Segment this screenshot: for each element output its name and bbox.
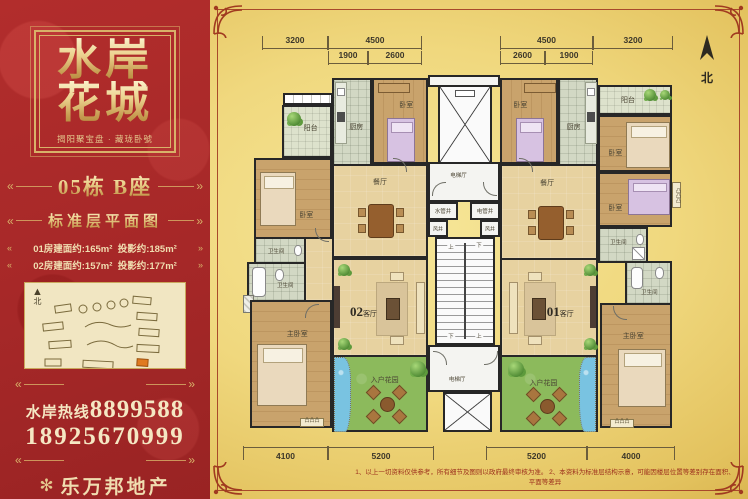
chair [358,208,366,217]
fleur-left-icon: « [15,378,102,390]
fleur-left-icon: « [15,454,102,466]
corner-flourish-icon [711,4,745,38]
room-bedroom-left-top: 卧室 [372,78,428,164]
laundry-strip [283,93,333,105]
floor-plan: 阳台 厨房 卧室 卧室 餐厅 卫生间 [243,70,673,435]
fleur-left-icon: « [7,180,52,192]
ac-position-tag: 凸凸凸 [672,182,681,208]
dim-top: 4500 [500,36,593,50]
stair-rail [464,243,466,339]
dining-table [368,204,394,238]
brand-title-frame: 水岸 花城 揭阳聚宝盘 · 藏珑卧號 [34,30,176,153]
brand-title-line1: 水岸 [57,38,153,81]
dim-bottom: 5200 [486,446,587,460]
garden-chair [526,411,542,427]
fleur-left-icon: « [7,215,42,227]
door-arc [432,182,446,196]
bathtub-icon [252,267,266,297]
dim-top-sub: 1900 [545,51,593,65]
brand-subtitle: 揭阳聚宝盘 · 藏珑卧號 [57,133,153,145]
sink-icon [587,88,595,96]
plan-north: 北 [692,34,722,86]
dim-top: 4500 [328,36,422,50]
dim-top-sub: 2600 [500,51,545,65]
corner-flourish-icon [212,462,246,496]
armchair [390,336,404,345]
bathtub-icon [631,267,643,289]
north-label: 北 [692,69,722,86]
toilet-icon [636,234,644,245]
area-unit02: 02房建面约:157m² 投影约:177m² [33,258,177,272]
chair [566,210,574,219]
disclaimer-footnote: 1、以上一切资料仅供参考，所有细节及图则以政府最终审核为准。 2、本资料为标准层… [352,466,738,486]
water-shaft: 水管井 [428,202,458,220]
room-kitchen-left: 厨房 [332,78,372,172]
bed [257,344,307,406]
corner-flourish-icon [212,4,246,38]
building-label: 05栋 B座 [58,171,152,201]
air-shaft-right: 风井 [480,220,500,237]
elevator-indicator [455,90,475,97]
room-bath-left-1: 卫生间 [254,237,306,264]
tv-console [334,286,340,328]
plant-icon [584,264,596,276]
garden-left: 入户花园 [332,355,428,432]
sink-icon [337,88,345,96]
shower-icon [632,247,645,260]
room-kitchen-right: 厨房 [558,78,598,172]
fleur-right-icon: » [108,378,195,390]
elevator-hall-top: 电梯厅 [428,162,500,202]
room-living-right: 01客厅 [500,258,598,357]
desk [378,83,410,93]
elevator-shaft-top [438,85,492,164]
site-map: ▲ 北 [24,282,186,369]
dim-bottom: 5200 [328,446,434,460]
chair [566,226,574,235]
chair [396,224,404,233]
garden-chair [366,409,382,425]
armchair [528,336,542,345]
garden-chair [392,385,408,401]
chair [528,226,536,235]
bed [260,172,296,226]
room-living-left: 02客厅 [332,258,428,357]
garden-table [540,399,555,414]
brand-panel: 水岸 花城 揭阳聚宝盘 · 藏珑卧號 « 05栋 B座 » « 标准层平面图 »… [0,0,210,499]
door-arc [484,351,498,365]
room-bath-right-1: 卫生间 [598,227,648,263]
ac-position-tag: 凸凸凸 [610,419,634,428]
bed [626,122,670,168]
tv-console [590,286,596,328]
dim-top: 3200 [593,36,673,50]
chair [396,208,404,217]
fleur-left-icon: « [7,261,30,270]
water-feature [579,357,596,432]
area-unit01: 01房建面约:165m² 投影约:185m² [33,241,177,255]
plant-icon [338,264,350,276]
dim-top-sub: 2600 [368,51,422,65]
site-map-sketch [25,283,185,369]
north-arrow-icon [694,34,720,64]
stove-icon [587,112,595,122]
air-shaft-left: 风井 [428,220,448,237]
coffee-table [532,298,546,320]
garden-chair [392,409,408,425]
sofa [416,282,425,334]
toilet-icon [294,245,302,256]
door-arc [483,182,497,196]
agency-name: 乐万邦地产 [61,472,171,499]
dim-top: 3200 [262,36,328,50]
room-master-left: 主卧室 凸凸凸 [250,300,332,428]
garden-table [380,397,395,412]
room-bath-right-2: 卫生间 [625,261,672,305]
site-map-north: ▲ 北 [32,287,43,306]
dim-bottom: 4000 [587,446,675,460]
fleur-right-icon: » [180,244,203,253]
sofa [509,282,518,334]
garden-chair [552,387,568,403]
brand-title-line2: 花城 [57,81,153,124]
room-master-right: 主卧室 凸凸凸 [600,303,672,428]
fleur-right-icon: » [158,180,203,192]
dim-bottom: 4100 [243,446,328,460]
armchair [390,272,404,281]
plan-title-label: 标准层平面图 [48,210,162,231]
plant-icon [287,112,301,126]
plant-icon [584,338,596,350]
hall-left [304,237,334,302]
garden-chair [366,385,382,401]
room-balcony-left: 阳台 [282,105,332,158]
hotline: 水岸热线8899588 [26,396,185,424]
chair [528,210,536,219]
room-bedroom-right-2: 卧室 凸凸凸 [598,172,672,227]
room-bedroom-right-top: 卧室 [500,78,558,164]
fleur-left-icon: « [7,244,30,253]
toilet-icon [655,267,664,279]
hotline-number: 8899588 [90,396,185,423]
bed [516,118,544,162]
room-balcony-right: 阳台 [598,85,672,115]
chair [358,224,366,233]
poster: 水岸 花城 揭阳聚宝盘 · 藏珑卧號 « 05栋 B座 » « 标准层平面图 »… [0,0,748,499]
dining-table [538,206,564,240]
fleur-right-icon: » [180,261,203,270]
fleur-right-icon: » [108,454,195,466]
coffee-table [386,298,400,320]
elevator-hall-bottom: 电梯厅 [428,345,500,392]
agency-logo-icon: ✻ [39,476,53,496]
toilet-icon [275,269,284,281]
plant-icon [644,89,656,101]
tree-icon [508,361,524,377]
ac-position-tag: 凸凸凸 [300,418,324,427]
bed [628,179,670,215]
armchair [528,272,542,281]
plant-icon [338,338,350,350]
tree-icon [410,361,426,377]
room-dining-left: 餐厅 [332,164,428,258]
elevator-shaft-bottom [443,392,492,432]
room-bedroom-right-1: 卧室 [598,115,672,172]
door-arc [433,351,447,365]
water-feature [334,357,351,432]
agency: ✻ 乐万邦地产 [39,472,170,499]
bed [387,118,415,162]
room-bedroom-left-side: 卧室 [254,158,332,239]
garden-right: 入户花园 [500,355,598,432]
dim-top-sub: 1900 [328,51,368,65]
desk [524,83,556,93]
stairwell: 上 下 下 上 [435,237,495,345]
garden-chair [526,387,542,403]
phone-number: 18925670999 [25,424,185,449]
elec-shaft: 电管井 [470,202,500,220]
garden-chair [552,411,568,427]
fleur-right-icon: » [168,215,203,227]
bed [618,349,666,407]
room-bath-left-2: 卫生间 [247,262,306,302]
stove-icon [337,112,345,122]
room-dining-right: 餐厅 [500,164,598,260]
plant-icon [660,90,670,100]
hotline-label: 水岸热线 [26,404,90,421]
